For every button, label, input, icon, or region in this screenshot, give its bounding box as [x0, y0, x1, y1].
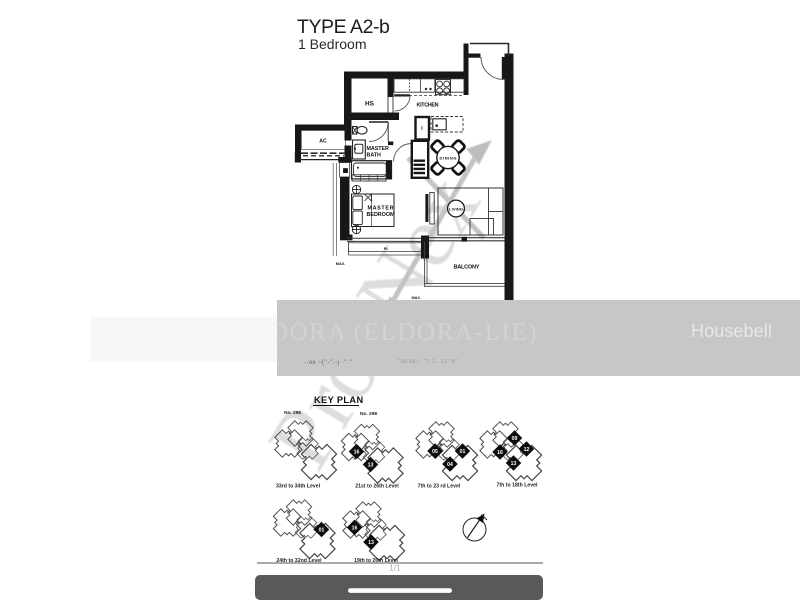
svg-text:01: 01 [460, 449, 466, 455]
svg-text:PL: PL [384, 247, 388, 251]
svg-text:MAX.: MAX. [336, 262, 346, 266]
svg-text:No. 298: No. 298 [360, 411, 377, 417]
svg-text:KEY PLAN: KEY PLAN [314, 395, 364, 405]
svg-text:09: 09 [512, 436, 518, 442]
svg-text:16: 16 [352, 526, 358, 532]
svg-text:05: 05 [432, 449, 438, 455]
svg-text:7th to 23 rd Level: 7th to 23 rd Level [418, 484, 461, 490]
svg-text:No. 296: No. 296 [284, 410, 301, 416]
svg-text:16: 16 [497, 450, 503, 456]
svg-text:1 Bedroom: 1 Bedroom [298, 36, 366, 52]
svg-text:BALCONY: BALCONY [454, 265, 480, 271]
svg-text:13: 13 [368, 540, 374, 546]
svg-text:KITCHEN: KITCHEN [417, 103, 439, 109]
svg-text:DORA (ELDORA-LIE): DORA (ELDORA-LIE) [270, 319, 538, 346]
svg-text:01: 01 [319, 528, 325, 534]
svg-text:Housebell: Housebell [691, 321, 772, 341]
svg-text:LIVING: LIVING [449, 206, 463, 211]
svg-text:''66 66,/··''1 1·, 13 ''6'': ''66 66,/··''1 1·, 13 ''6'' [398, 359, 458, 365]
svg-text:BATH: BATH [367, 153, 381, 159]
svg-text:DINING: DINING [440, 155, 457, 160]
svg-text:MASTER: MASTER [368, 206, 394, 212]
svg-text:16: 16 [354, 450, 360, 456]
svg-text:33rd to 34th Level: 33rd to 34th Level [276, 484, 321, 490]
svg-text:MAX.: MAX. [412, 296, 422, 300]
svg-text:21st to 26th Level: 21st to 26th Level [355, 484, 399, 490]
svg-text:-·oʌ ~(''-''·-j ·''·'': -·oʌ ~(''-''·-j ·''·'' [304, 360, 352, 366]
svg-text:BEDROOM: BEDROOM [367, 212, 396, 218]
svg-text:HS: HS [365, 101, 375, 108]
svg-text:12: 12 [524, 447, 530, 453]
svg-text:TYPE A2-b: TYPE A2-b [297, 16, 390, 38]
svg-text:MASTER: MASTER [367, 146, 390, 152]
svg-text:AC: AC [319, 139, 327, 145]
svg-text:7th to 18th Level: 7th to 18th Level [497, 483, 538, 489]
svg-text:13: 13 [368, 463, 374, 469]
svg-text:1/1: 1/1 [389, 563, 401, 573]
svg-text:13: 13 [511, 461, 517, 467]
svg-text:04: 04 [447, 462, 453, 468]
